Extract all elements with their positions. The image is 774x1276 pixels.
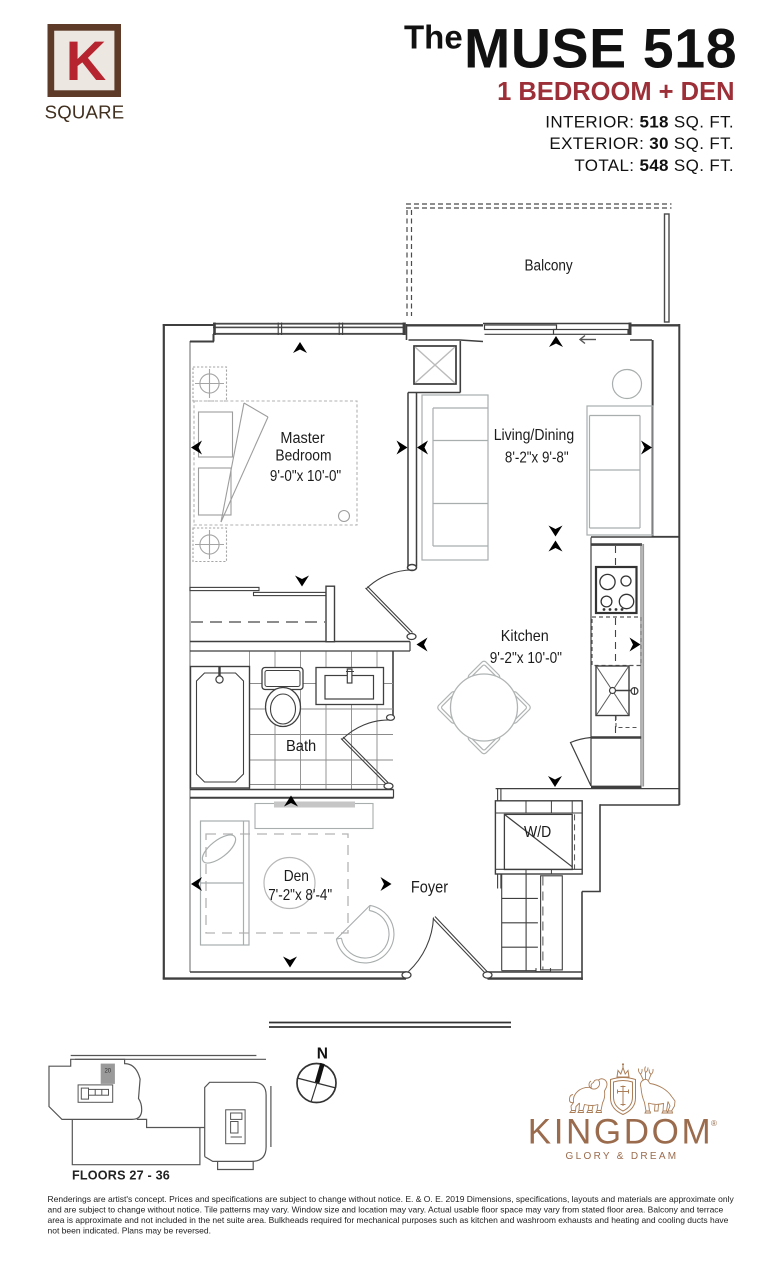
svg-text:9'-0"x 10'-0": 9'-0"x 10'-0" [270, 468, 341, 485]
svg-text:area is approximate and not in: area is approximate and not included in … [48, 1215, 729, 1225]
svg-text:®: ® [711, 1119, 717, 1128]
svg-text:Foyer: Foyer [411, 879, 449, 897]
svg-text:TOTAL: 548 SQ. FT.: TOTAL: 548 SQ. FT. [574, 156, 734, 175]
svg-text:INTERIOR: 518 SQ. FT.: INTERIOR: 518 SQ. FT. [545, 113, 734, 132]
svg-text:SQUARE: SQUARE [45, 102, 125, 123]
svg-text:The: The [404, 18, 463, 55]
svg-text:Bedroom: Bedroom [275, 447, 331, 464]
svg-text:8'-2"x 9'-8": 8'-2"x 9'-8" [505, 449, 569, 466]
svg-text:EXTERIOR: 30 SQ. FT.: EXTERIOR: 30 SQ. FT. [549, 134, 734, 153]
svg-text:20: 20 [104, 1069, 111, 1075]
svg-text:9'-2"x 10'-0": 9'-2"x 10'-0" [490, 650, 562, 667]
svg-text:K: K [66, 29, 106, 92]
svg-text:MUSE 518: MUSE 518 [464, 18, 737, 80]
svg-text:KINGDOM: KINGDOM [528, 1112, 713, 1151]
svg-text:Balcony: Balcony [525, 257, 573, 274]
svg-text:Renderings are artist's concep: Renderings are artist's concept. Prices … [48, 1194, 735, 1204]
svg-text:Master: Master [280, 430, 324, 447]
svg-text:Kitchen: Kitchen [501, 628, 549, 645]
svg-text:and are subject to change with: and are subject to change without notice… [48, 1205, 724, 1215]
svg-text:7'-2"x 8'-4": 7'-2"x 8'-4" [268, 887, 332, 904]
svg-text:FLOORS 27 - 36: FLOORS 27 - 36 [72, 1169, 170, 1183]
svg-text:Den: Den [284, 868, 309, 885]
svg-text:GLORY & DREAM: GLORY & DREAM [566, 1151, 679, 1162]
svg-text:1 BEDROOM + DEN: 1 BEDROOM + DEN [497, 78, 734, 106]
svg-text:Living/Dining: Living/Dining [494, 427, 575, 444]
svg-text:Bath: Bath [286, 738, 316, 755]
svg-text:N: N [317, 1046, 328, 1063]
svg-text:not been indicated. Plans may: not been indicated. Plans may be reverse… [48, 1226, 212, 1236]
svg-text:W/D: W/D [524, 824, 551, 841]
